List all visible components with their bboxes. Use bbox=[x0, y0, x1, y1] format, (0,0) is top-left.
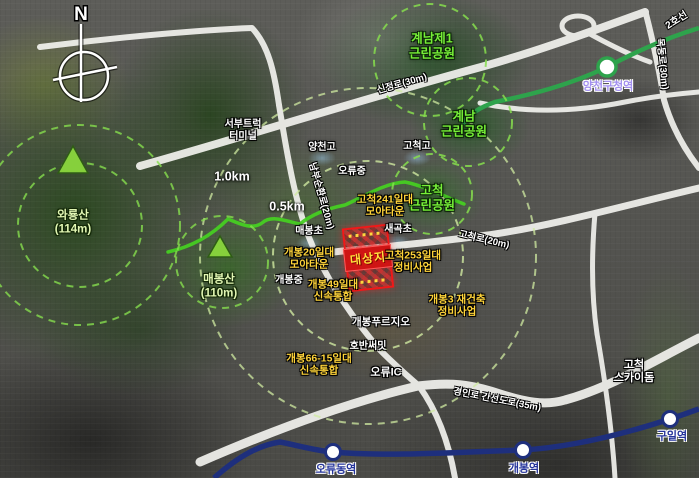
site-box: 대상지 bbox=[342, 224, 394, 292]
mountain-icon-waryongsan bbox=[58, 146, 88, 173]
north-arrow-icon: N bbox=[53, 4, 117, 102]
site-hatch-bottom bbox=[354, 278, 388, 284]
ring-waryongsan-inner bbox=[18, 163, 142, 287]
station-dot-yangcheon-gu-office bbox=[598, 58, 616, 76]
ring-maebongsan bbox=[176, 216, 268, 308]
compass-north-label: N bbox=[74, 4, 88, 25]
road-top-west bbox=[40, 28, 279, 105]
ring-gocheok-park bbox=[392, 154, 472, 234]
site-hatch-top bbox=[349, 231, 383, 237]
mountain-icon-maebongsan bbox=[208, 236, 232, 257]
ring-waryongsan-outer bbox=[0, 125, 180, 325]
road-skydome-spur bbox=[593, 213, 597, 334]
station-dot-gaebong bbox=[516, 443, 531, 458]
site-location-map: N 대상지 계남제1 근린공원 계남 근린공원 고척 근린공원 와룡산 (114… bbox=[0, 0, 699, 478]
site-label: 대상지 bbox=[343, 244, 393, 272]
road-south-spur bbox=[597, 334, 615, 478]
subway-line-1 bbox=[214, 409, 699, 478]
station-dot-oryudong bbox=[326, 445, 341, 460]
station-dot-guil bbox=[663, 412, 678, 427]
